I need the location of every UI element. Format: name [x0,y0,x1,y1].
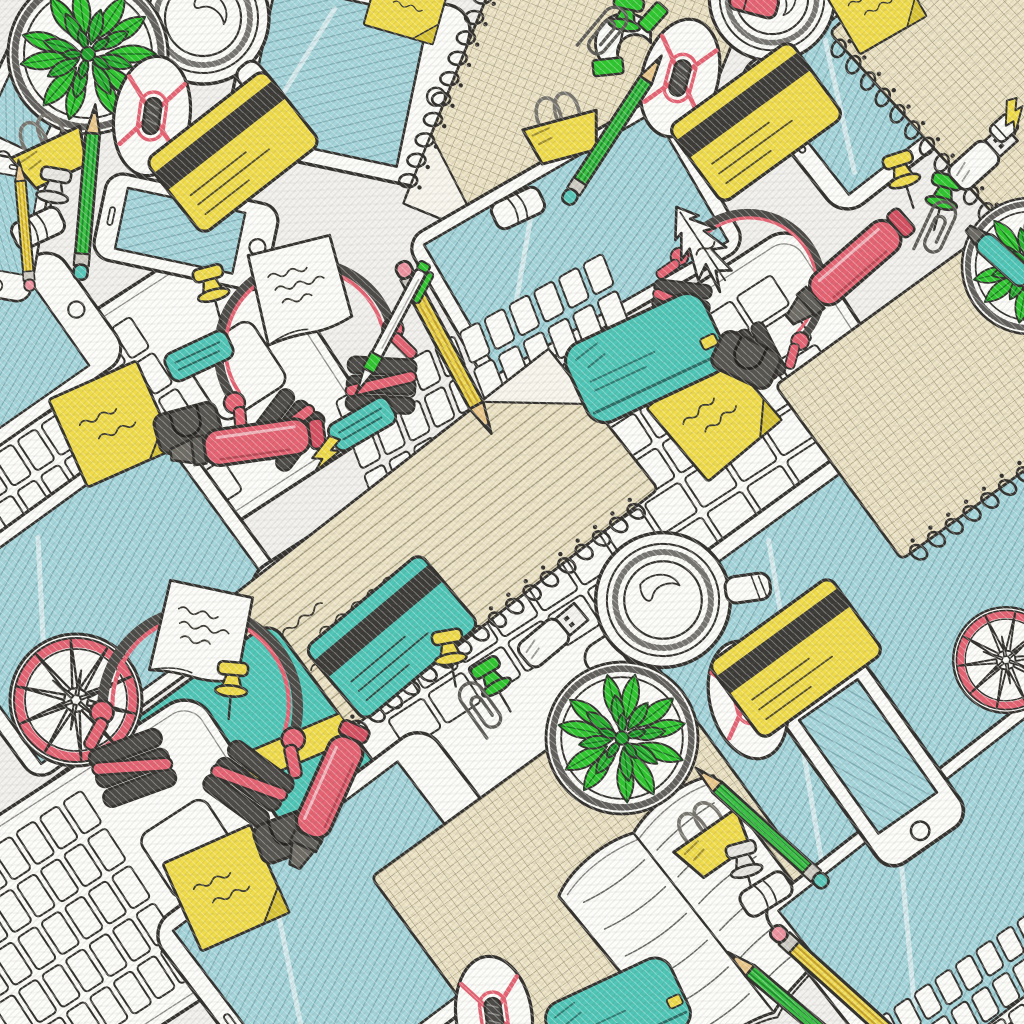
pattern-canvas [0,0,1024,1024]
doodle-scene [0,0,1024,1024]
fabric-pattern [0,0,1024,1024]
